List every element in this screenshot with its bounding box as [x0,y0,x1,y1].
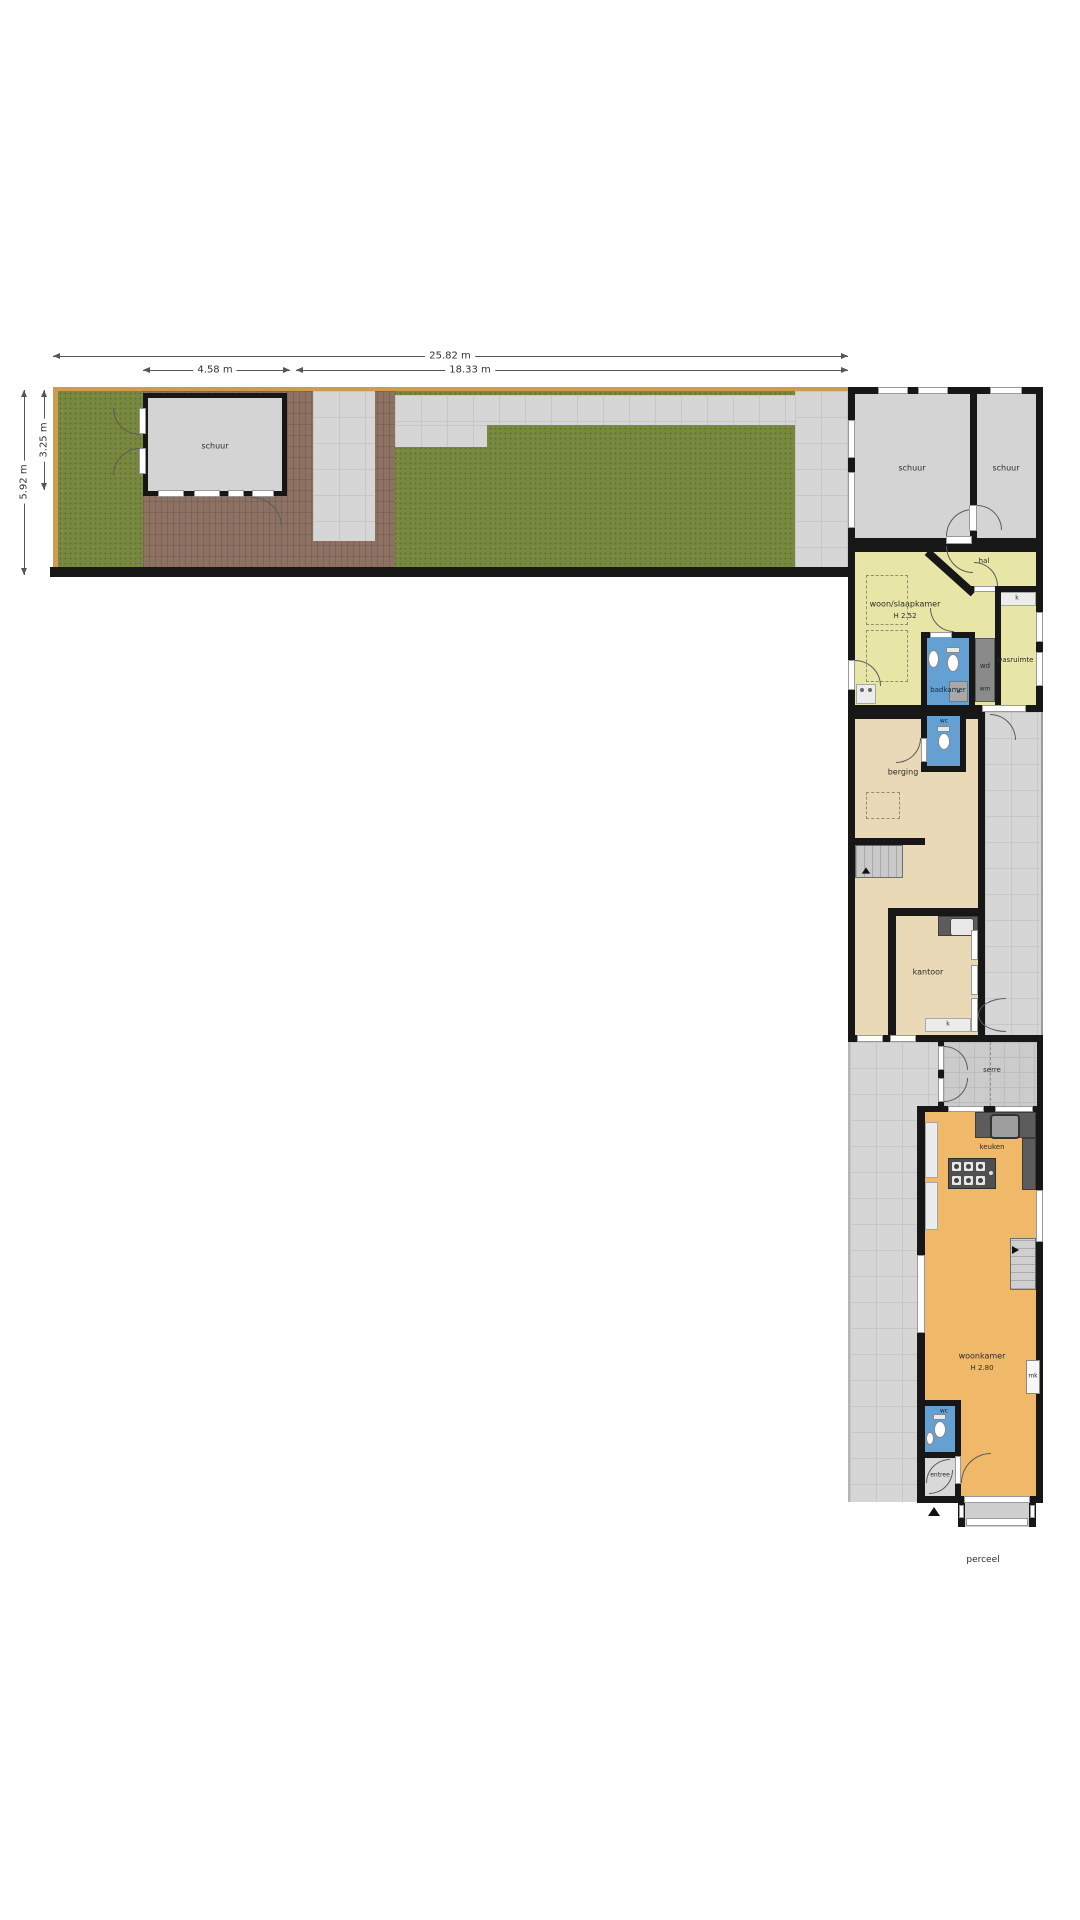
door-opening [890,1035,916,1042]
room-label-closet1: k [1015,596,1018,603]
kitchen-island [948,1158,996,1189]
toilet [938,733,950,750]
burner-dot [860,688,864,692]
wall [848,838,925,845]
shed-side-door [139,408,146,434]
dim-arrow [21,568,27,575]
cooktop-burner [952,1176,961,1185]
kitchen-counter-left [925,1122,938,1178]
room-label-shed-left: schuur [898,463,925,472]
dim-arrow [41,390,47,397]
bay-glass-side [1030,1505,1035,1518]
floorplan-canvas: 25.82 m 4.58 m 18.33 m 5.92 m 3.25 m sch… [0,0,1080,1920]
dim-arrow [53,353,60,359]
burner-dot [868,688,872,692]
french-door [971,998,978,1032]
dim-arrow [841,353,848,359]
parcel-label: perceel [966,1555,999,1565]
dim-arrow [143,367,150,373]
room-label-wc1: wc [940,719,948,726]
room-label-closet2: k [946,1022,949,1029]
kitchen-sink [990,1114,1020,1139]
shed-door-opening [946,536,972,544]
dim-arrow [841,367,848,373]
bay-glass-side [959,1505,964,1518]
toilet-tank [946,647,960,653]
shed-door-opening [252,490,274,497]
room-label-laundry: wasruimte [997,656,1034,664]
window [228,490,244,497]
door-opening [921,738,927,762]
toilet [934,1421,946,1438]
wc-sink [926,1432,934,1445]
room-label-storage: berging [888,767,919,776]
stairs-arrow [862,867,870,873]
room-label-living: woonkamer [959,1351,1006,1360]
window [878,387,908,394]
garden-tile-path [313,391,375,541]
room-label-shed-right: schuur [992,463,1019,472]
stairs-arrow [1012,1246,1019,1254]
window [158,490,184,497]
dim-line-garden-width [296,370,848,371]
room-label-kitchen: keuken [979,1143,1004,1151]
dim-label-garden-width: 18.33 m [445,365,495,376]
shed-side-door [139,448,146,474]
cooktop-burner [976,1162,985,1171]
window [1036,652,1043,686]
garden-south-wall [50,567,850,577]
skylight-dashed [866,792,900,819]
cooktop-knob [989,1171,993,1175]
window [1036,612,1043,642]
cooktop-burner [952,1162,961,1171]
wall [995,586,1001,705]
window [194,490,220,497]
kitchenette-block [856,684,876,704]
window [971,965,978,995]
window [971,930,978,960]
room-label-conservatory: serre [983,1066,1001,1074]
label-dryer: wd [980,662,990,670]
toilet [947,654,959,672]
dim-arrow [41,483,47,490]
window [848,420,855,458]
cooktop-burner [964,1176,973,1185]
dim-arrow [283,367,290,373]
entrance-marker [928,1507,940,1516]
bathroom-sink [928,650,939,668]
dim-label-garden-depth: 5.92 m [19,460,30,503]
dim-arrow [296,367,303,373]
garden-terrace [795,391,848,567]
garden-tile-band [395,395,848,425]
laundry-door [982,705,1026,712]
window [990,387,1022,394]
room-label-garden-shed: schuur [201,441,228,450]
door-opening [930,632,952,638]
cooktop-burner [964,1162,973,1171]
room-label-office: kantoor [913,967,944,976]
garden-tile-step [395,425,487,447]
bay-glass [966,1518,1028,1526]
door-opening [848,660,855,690]
room-label-bathroom: badkamer [930,686,965,694]
cooktop-burner [976,1176,985,1185]
dim-label-total-width: 25.82 m [425,351,475,362]
window [918,387,948,394]
window [917,1255,925,1333]
dim-arrow [21,390,27,397]
dim-label-shed-width: 4.58 m [193,365,236,376]
kitchen-counter-right [1022,1138,1036,1190]
bay-opening [964,1496,1030,1503]
toilet-tank [937,726,950,732]
toilet-tank [933,1414,946,1420]
window [1036,1190,1043,1242]
kitchen-counter-left [925,1182,938,1230]
furniture-dashed [866,575,908,625]
label-meter-cupboard: mk [1028,1374,1037,1381]
label-washer: wm [980,687,991,694]
door-opening [857,1035,883,1042]
side-path-right [985,712,1043,1042]
dim-label-shed-depth: 3.25 m [39,418,50,461]
window [848,472,855,528]
wall [888,908,978,916]
shed-divider-door [969,505,977,531]
wall [888,908,896,1035]
room-label-living-height: H 2.80 [970,1364,993,1372]
door-opening [974,586,996,592]
